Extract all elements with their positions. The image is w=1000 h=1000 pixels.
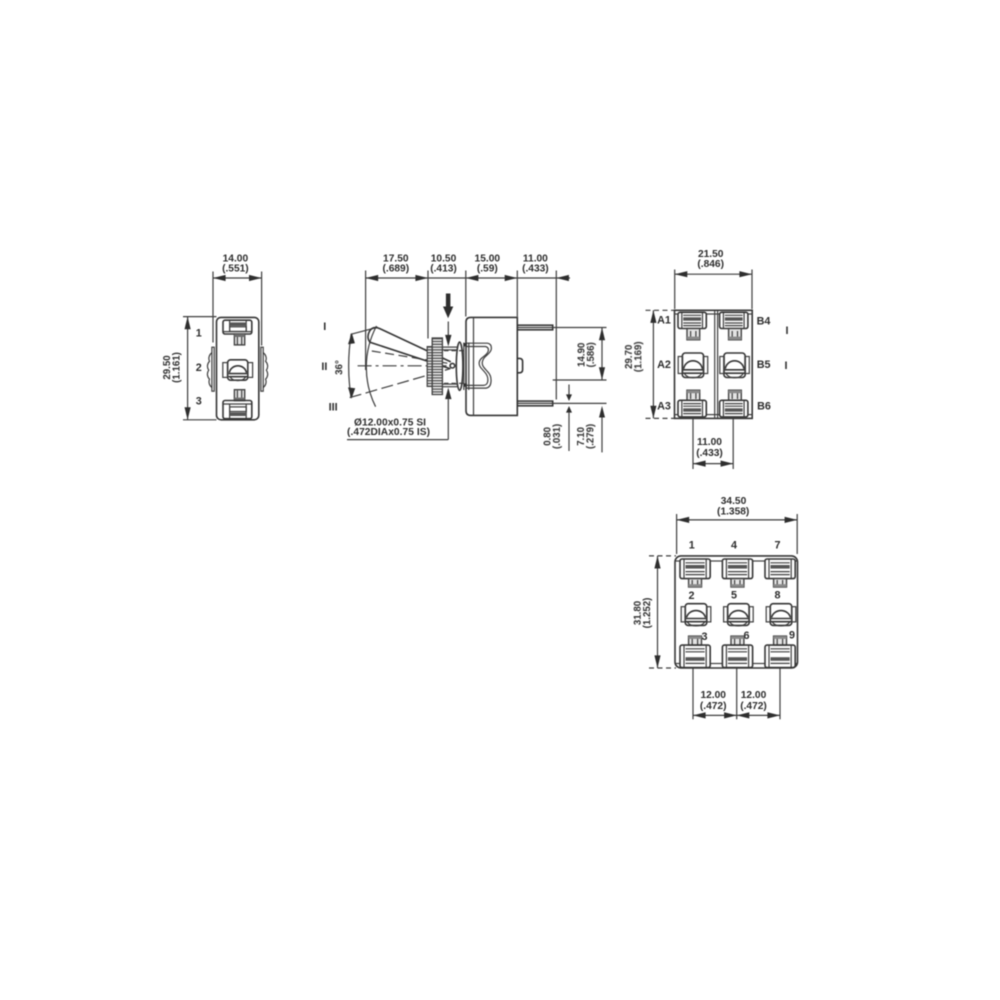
svg-text:(.689): (.689): [382, 264, 409, 275]
svg-text:(.279): (.279): [585, 424, 596, 449]
svg-text:(.551): (.551): [222, 264, 249, 275]
svg-text:(.846): (.846): [697, 259, 724, 270]
svg-text:1: 1: [689, 540, 695, 552]
svg-text:(.413): (.413): [430, 264, 457, 275]
svg-text:12.00: 12.00: [741, 690, 767, 701]
svg-text:B6: B6: [757, 400, 771, 412]
svg-text:2: 2: [688, 590, 694, 602]
svg-text:1: 1: [196, 328, 202, 340]
svg-text:(1.252): (1.252): [642, 598, 653, 629]
svg-text:(1.358): (1.358): [717, 507, 749, 518]
svg-text:B5: B5: [757, 359, 771, 371]
svg-text:(.472): (.472): [740, 701, 767, 712]
svg-text:I: I: [786, 325, 789, 337]
svg-text:(.031): (.031): [552, 424, 563, 449]
svg-text:2: 2: [196, 362, 202, 374]
svg-text:(1.161): (1.161): [172, 352, 183, 383]
svg-text:(.433): (.433): [696, 448, 723, 459]
svg-text:(.472): (.472): [700, 701, 727, 712]
svg-text:34.50: 34.50: [721, 496, 747, 507]
svg-text:A3: A3: [657, 400, 671, 412]
svg-text:I: I: [785, 360, 788, 372]
svg-text:(1.169): (1.169): [633, 341, 644, 372]
svg-text:3: 3: [196, 396, 202, 408]
svg-text:A2: A2: [657, 359, 671, 371]
svg-text:(.59): (.59): [477, 264, 498, 275]
svg-text:(.472DIAx0.75 IS): (.472DIAx0.75 IS): [347, 427, 430, 438]
svg-text:(.586): (.586): [586, 342, 597, 367]
svg-text:II: II: [321, 361, 327, 373]
svg-text:11.00: 11.00: [697, 437, 722, 448]
svg-text:12.00: 12.00: [700, 690, 726, 701]
svg-text:8: 8: [774, 590, 780, 602]
svg-text:B4: B4: [757, 315, 771, 327]
svg-text:7: 7: [774, 540, 780, 552]
svg-text:III: III: [329, 402, 338, 414]
svg-text:36°: 36°: [334, 360, 345, 375]
svg-text:9: 9: [789, 630, 795, 642]
svg-text:5: 5: [731, 590, 737, 602]
svg-text:A1: A1: [657, 315, 671, 327]
svg-text:4: 4: [731, 540, 737, 552]
svg-text:I: I: [323, 321, 326, 333]
svg-text:3: 3: [701, 631, 707, 643]
svg-text:(.433): (.433): [522, 264, 549, 275]
